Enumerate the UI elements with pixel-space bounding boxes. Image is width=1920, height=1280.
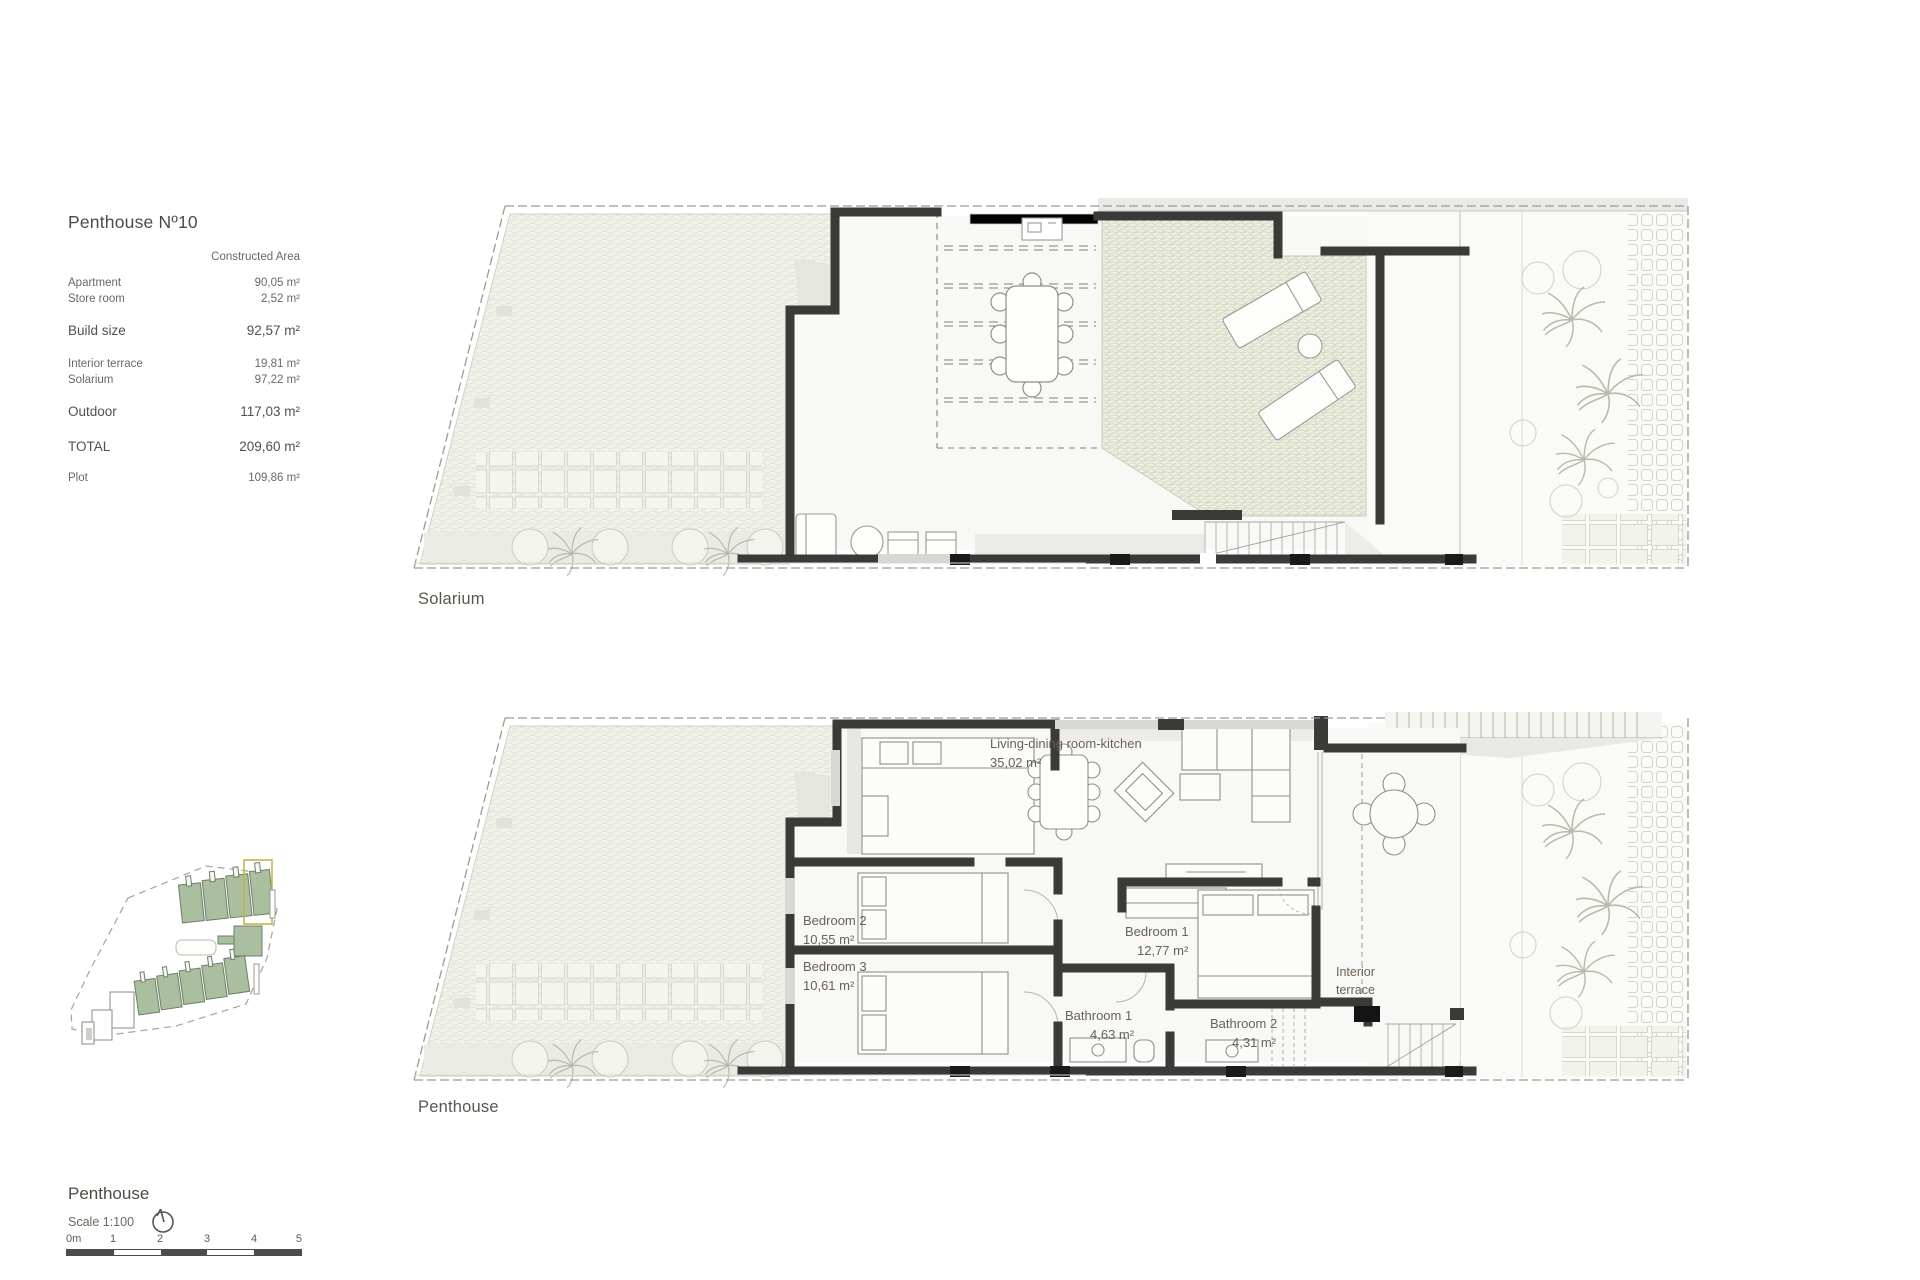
north-arrow-icon bbox=[148, 1206, 178, 1236]
window bbox=[1055, 720, 1158, 729]
area-row-total: TOTAL209,60 m² bbox=[68, 437, 300, 456]
bedroom2-area: 10,55 m² bbox=[803, 932, 855, 947]
penthouse-plan: Living-dining room-kitchen 35,02 m² Bedr… bbox=[410, 710, 1690, 1090]
upper-building-row bbox=[177, 862, 274, 923]
bathroom2-label: Bathroom 2 bbox=[1210, 1016, 1277, 1031]
window bbox=[1184, 720, 1314, 729]
living-room-label: Living-dining room-kitchen bbox=[990, 736, 1142, 751]
lower-building-row bbox=[132, 948, 251, 1015]
interior-terrace-label-2: terrace bbox=[1336, 983, 1375, 997]
area-row-plot: Plot109,86 m² bbox=[68, 470, 300, 486]
white-unit bbox=[110, 992, 134, 1028]
page-title: Penthouse Nº10 bbox=[68, 212, 300, 233]
area-row-outdoor: Outdoor117,03 m² bbox=[68, 402, 300, 421]
paving-grid bbox=[476, 452, 762, 508]
floorplan-sheet: Penthouse Nº10 Constructed Area Apartmen… bbox=[0, 0, 1920, 1280]
bedroom1-label: Bedroom 1 bbox=[1125, 924, 1189, 939]
scale-bar-segments bbox=[66, 1249, 302, 1256]
bed-2 bbox=[858, 873, 1008, 943]
area-row-apartment: Apartment90,05 m² bbox=[68, 275, 300, 291]
bed-3 bbox=[858, 972, 1008, 1054]
bathroom1-label: Bathroom 1 bbox=[1065, 1008, 1132, 1023]
bathroom1-area: 4,63 m² bbox=[1090, 1027, 1135, 1042]
bbq-grill bbox=[1022, 218, 1062, 240]
interior-terrace-label-1: Interior bbox=[1336, 965, 1375, 979]
bathroom2-area: 4,31 m² bbox=[1232, 1035, 1277, 1050]
area-table-header: Constructed Area bbox=[68, 249, 300, 265]
scale-ticks: 0m 1 2 3 4 5 bbox=[66, 1233, 302, 1247]
floor-title: Penthouse bbox=[68, 1184, 149, 1204]
area-row-interior-terrace: Interior terrace19,81 m² bbox=[68, 356, 300, 372]
bedroom3-area: 10,61 m² bbox=[803, 978, 855, 993]
site-plan-map bbox=[58, 852, 294, 1052]
bedroom2-label: Bedroom 2 bbox=[803, 913, 867, 928]
area-row-solarium: Solarium97,22 m² bbox=[68, 372, 300, 388]
solarium-garden bbox=[420, 214, 835, 576]
bedroom1-area: 12,77 m² bbox=[1137, 943, 1189, 958]
info-panel: Penthouse Nº10 Constructed Area Apartmen… bbox=[68, 212, 300, 486]
scale-label: Scale 1:100 bbox=[68, 1215, 134, 1229]
penthouse-garden bbox=[420, 726, 835, 1088]
solarium-terrace bbox=[790, 212, 1385, 559]
solarium-caption: Solarium bbox=[418, 590, 485, 609]
living-room-area: 35,02 m² bbox=[990, 755, 1042, 770]
area-row-buildsize: Build size92,57 m² bbox=[68, 321, 300, 340]
penthouse-caption: Penthouse bbox=[418, 1098, 499, 1117]
car-icon bbox=[176, 940, 216, 955]
solarium-plan bbox=[410, 198, 1690, 578]
bedroom3-label: Bedroom 3 bbox=[803, 959, 867, 974]
scale-bar: 0m 1 2 3 4 5 bbox=[66, 1233, 302, 1263]
detached-unit bbox=[234, 926, 262, 956]
area-row-storeroom: Store room2,52 m² bbox=[68, 291, 300, 307]
bed-1 bbox=[1198, 890, 1314, 998]
